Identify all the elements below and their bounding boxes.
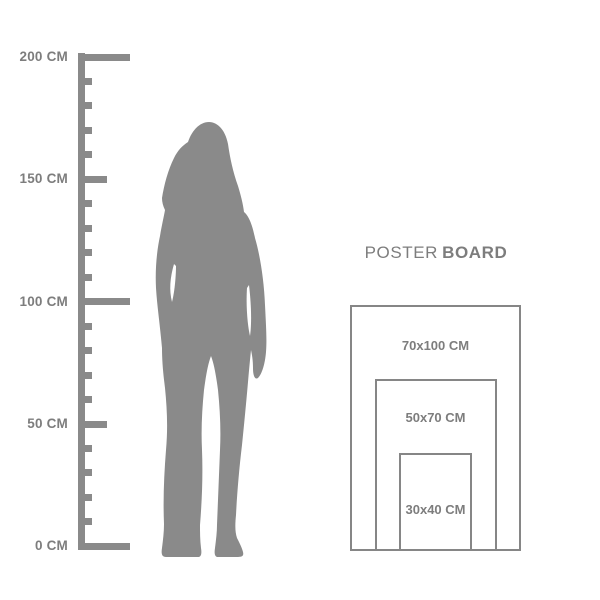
ruler-tick-30cm (78, 469, 92, 476)
ruler-tick-100cm (78, 298, 130, 305)
ruler-tick-160cm (78, 151, 92, 158)
ruler-tick-120cm (78, 249, 92, 256)
poster-size-label-70x100: 70x100 CM (376, 337, 496, 355)
ruler-tick-0cm (78, 543, 130, 550)
ruler-tick-180cm (78, 102, 92, 109)
ruler-tick-90cm (78, 323, 92, 330)
size-guide-diagram: 200 CM150 CM100 CM50 CM0 CM POSTERBOARD … (0, 0, 600, 600)
ruler-label-150cm: 150 CM (6, 169, 68, 189)
ruler-label-200cm: 200 CM (6, 47, 68, 67)
poster-size-label-50x70: 50x70 CM (376, 409, 496, 427)
ruler-tick-130cm (78, 225, 92, 232)
ruler-tick-70cm (78, 372, 92, 379)
ruler-tick-150cm (78, 176, 107, 183)
ruler-tick-200cm (78, 54, 130, 61)
ruler-tick-190cm (78, 78, 92, 85)
ruler-tick-140cm (78, 200, 92, 207)
ruler-label-0cm: 0 CM (6, 536, 68, 556)
ruler-tick-80cm (78, 347, 92, 354)
ruler-label-50cm: 50 CM (6, 414, 68, 434)
silhouette-body (156, 122, 267, 557)
ruler-tick-40cm (78, 445, 92, 452)
ruler-tick-110cm (78, 274, 92, 281)
ruler-label-100cm: 100 CM (6, 292, 68, 312)
ruler-tick-60cm (78, 396, 92, 403)
ruler-tick-20cm (78, 494, 92, 501)
poster-size-label-30x40: 30x40 CM (376, 501, 496, 519)
standing-woman-silhouette-icon (150, 120, 268, 558)
poster-board-title-light: POSTER (365, 243, 439, 262)
ruler-tick-50cm (78, 421, 107, 428)
poster-board-title: POSTERBOARD (348, 243, 524, 263)
ruler-tick-10cm (78, 518, 92, 525)
ruler-tick-170cm (78, 127, 92, 134)
poster-board-title-bold: BOARD (442, 243, 507, 262)
